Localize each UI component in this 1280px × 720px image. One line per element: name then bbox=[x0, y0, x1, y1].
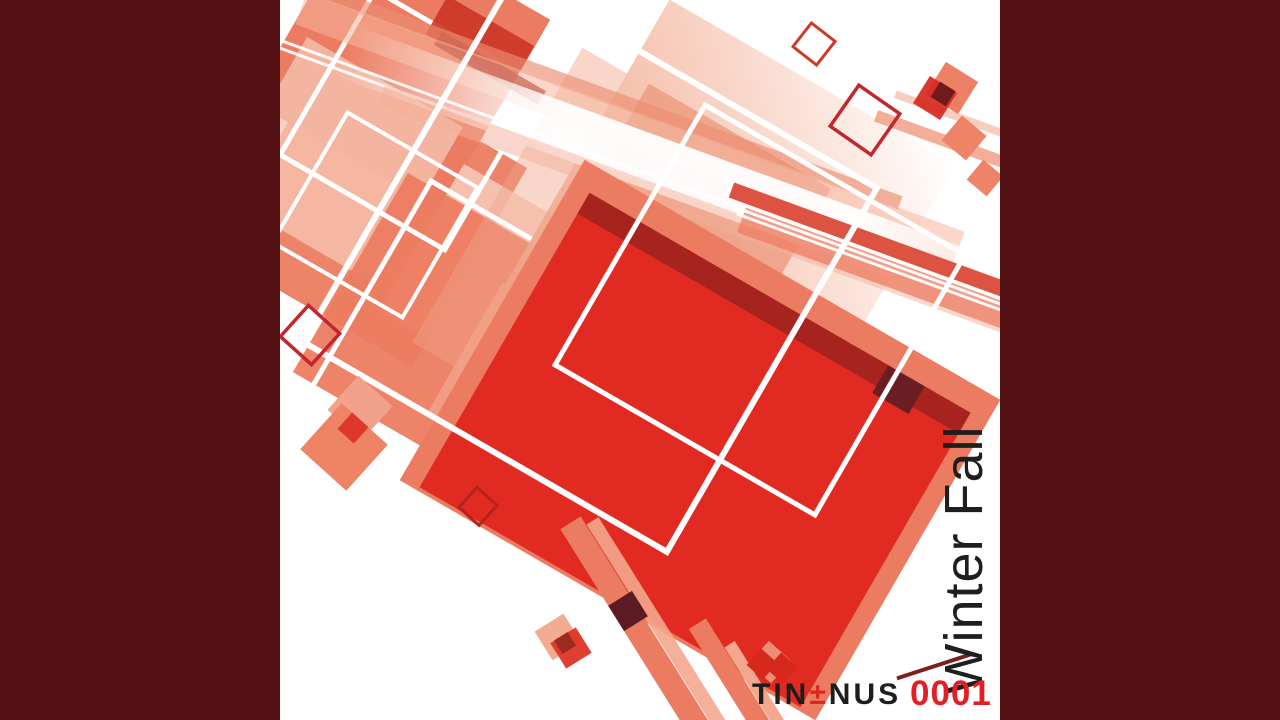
album-cover: Winter Fall TIN±NUS 0001 bbox=[0, 0, 1280, 720]
brand-plusminus-symbol: ± bbox=[809, 678, 828, 711]
right-letterbox-bar bbox=[1000, 0, 1280, 720]
cover-art-canvas: Winter Fall TIN±NUS 0001 bbox=[280, 0, 1000, 720]
catalog-number: 0001 bbox=[910, 674, 992, 714]
abstract-squares-artwork bbox=[280, 0, 1000, 720]
brand-suffix: NUS bbox=[829, 678, 901, 711]
album-title: Winter Fall bbox=[930, 420, 998, 700]
brand-prefix: TIN bbox=[752, 678, 809, 711]
left-letterbox-bar bbox=[0, 0, 280, 720]
label-brand: TIN±NUS bbox=[752, 678, 901, 712]
